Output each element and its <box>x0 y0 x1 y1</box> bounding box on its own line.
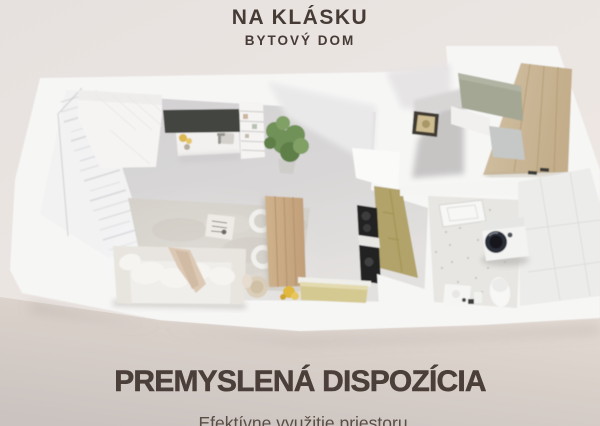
svg-text:BYTOVÝ DOM: BYTOVÝ DOM <box>245 33 356 48</box>
svg-text:NA KLÁSKU: NA KLÁSKU <box>232 6 368 29</box>
svg-text:PREMYSLENÁ DISPOZÍCIA: PREMYSLENÁ DISPOZÍCIA <box>114 364 486 398</box>
svg-text:Efektívne využitie priestoru: Efektívne využitie priestoru <box>198 413 407 426</box>
